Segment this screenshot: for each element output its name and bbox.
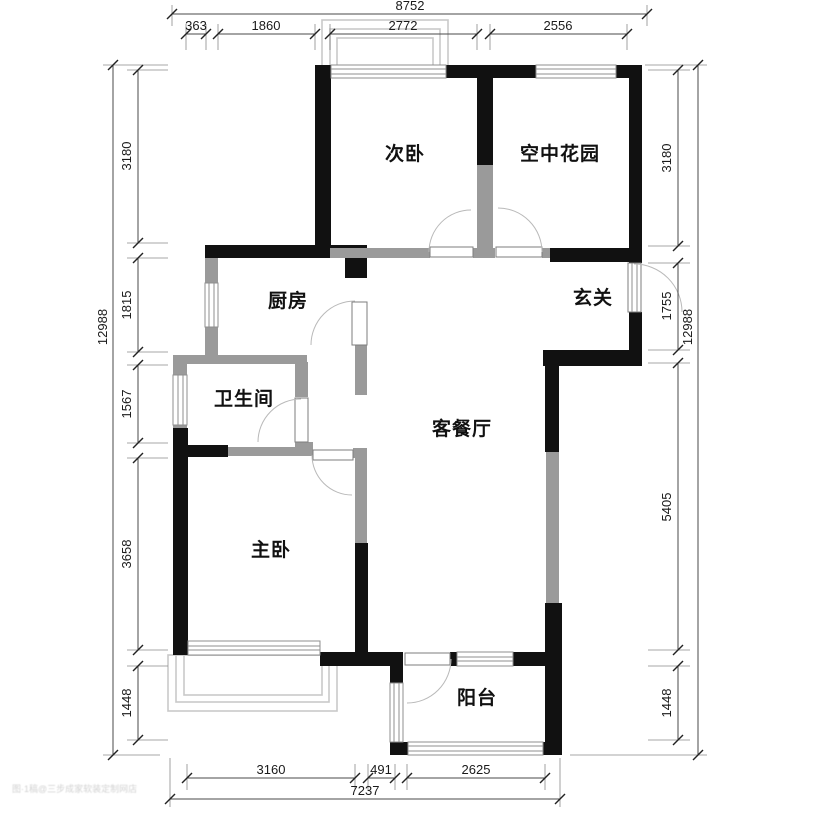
floor-plan-canvas: 次卧 空中花园 厨房 玄关 卫生间 客餐厅 主卧 阳台	[0, 0, 822, 819]
dim-left-seg5: 1448	[119, 689, 134, 718]
door-balcony	[405, 653, 451, 703]
window-balcony-left	[390, 683, 403, 742]
window-bedroom2-bay-opening	[331, 65, 446, 78]
window-balcony-bottom	[408, 742, 543, 755]
dim-right-seg3: 5405	[659, 493, 674, 522]
dim-bottom-overall: 7237	[351, 783, 380, 798]
extension-lines	[103, 5, 707, 807]
room-label-sky-garden: 空中花园	[520, 142, 600, 165]
dim-top-overall: 8752	[396, 0, 425, 13]
dim-top-seg4: 2556	[544, 18, 573, 33]
dim-top-seg1: 363	[185, 18, 207, 33]
room-label-balcony: 阳台	[457, 686, 497, 709]
dim-left-seg3: 1567	[119, 390, 134, 419]
dim-bottom-seg3: 2625	[462, 762, 491, 777]
walls-partition	[173, 165, 559, 603]
room-label-master-bedroom: 主卧	[251, 539, 291, 561]
window-master-bay-opening	[188, 641, 320, 655]
bay-window-master-bedroom	[168, 655, 337, 711]
doors	[258, 208, 682, 703]
door-bedroom2	[429, 210, 473, 257]
door-kitchen	[311, 301, 367, 345]
dim-right-seg1: 3180	[659, 144, 674, 173]
dimension-lines	[113, 14, 698, 799]
window-bathroom	[173, 375, 187, 425]
window-balcony-top	[457, 652, 513, 666]
window-sky-garden	[536, 65, 616, 78]
room-label-bathroom: 卫生间	[214, 387, 274, 410]
dim-bottom-seg1: 3160	[257, 762, 286, 777]
window-kitchen	[205, 283, 218, 327]
dim-right-overall: 12988	[680, 309, 695, 345]
room-label-kitchen: 厨房	[268, 289, 308, 312]
dim-right-seg4: 1448	[659, 689, 674, 718]
room-label-living-dining: 客餐厅	[432, 417, 492, 440]
dim-right-seg2: 1755	[659, 292, 674, 321]
dim-left-seg4: 3658	[119, 540, 134, 569]
watermark-text: 图·1稿@三步成家软装定制网店	[12, 783, 137, 794]
dim-top-seg3: 2772	[389, 18, 418, 33]
room-label-foyer: 玄关	[573, 286, 613, 309]
door-sky-garden	[496, 208, 542, 257]
dim-left-seg2: 1815	[119, 291, 134, 320]
bay-window-bedroom2	[322, 20, 448, 70]
dim-bottom-seg2: 491	[370, 762, 392, 777]
dim-left-seg1: 3180	[119, 142, 134, 171]
room-label-bedroom2: 次卧	[385, 142, 425, 165]
dim-left-overall: 12988	[95, 309, 110, 345]
floor-plan-drawing: 次卧 空中花园 厨房 玄关 卫生间 客餐厅 主卧 阳台	[0, 0, 822, 819]
door-master-bedroom	[312, 450, 353, 495]
dim-top-seg2: 1860	[252, 18, 281, 33]
dimension-ticks	[108, 9, 703, 804]
